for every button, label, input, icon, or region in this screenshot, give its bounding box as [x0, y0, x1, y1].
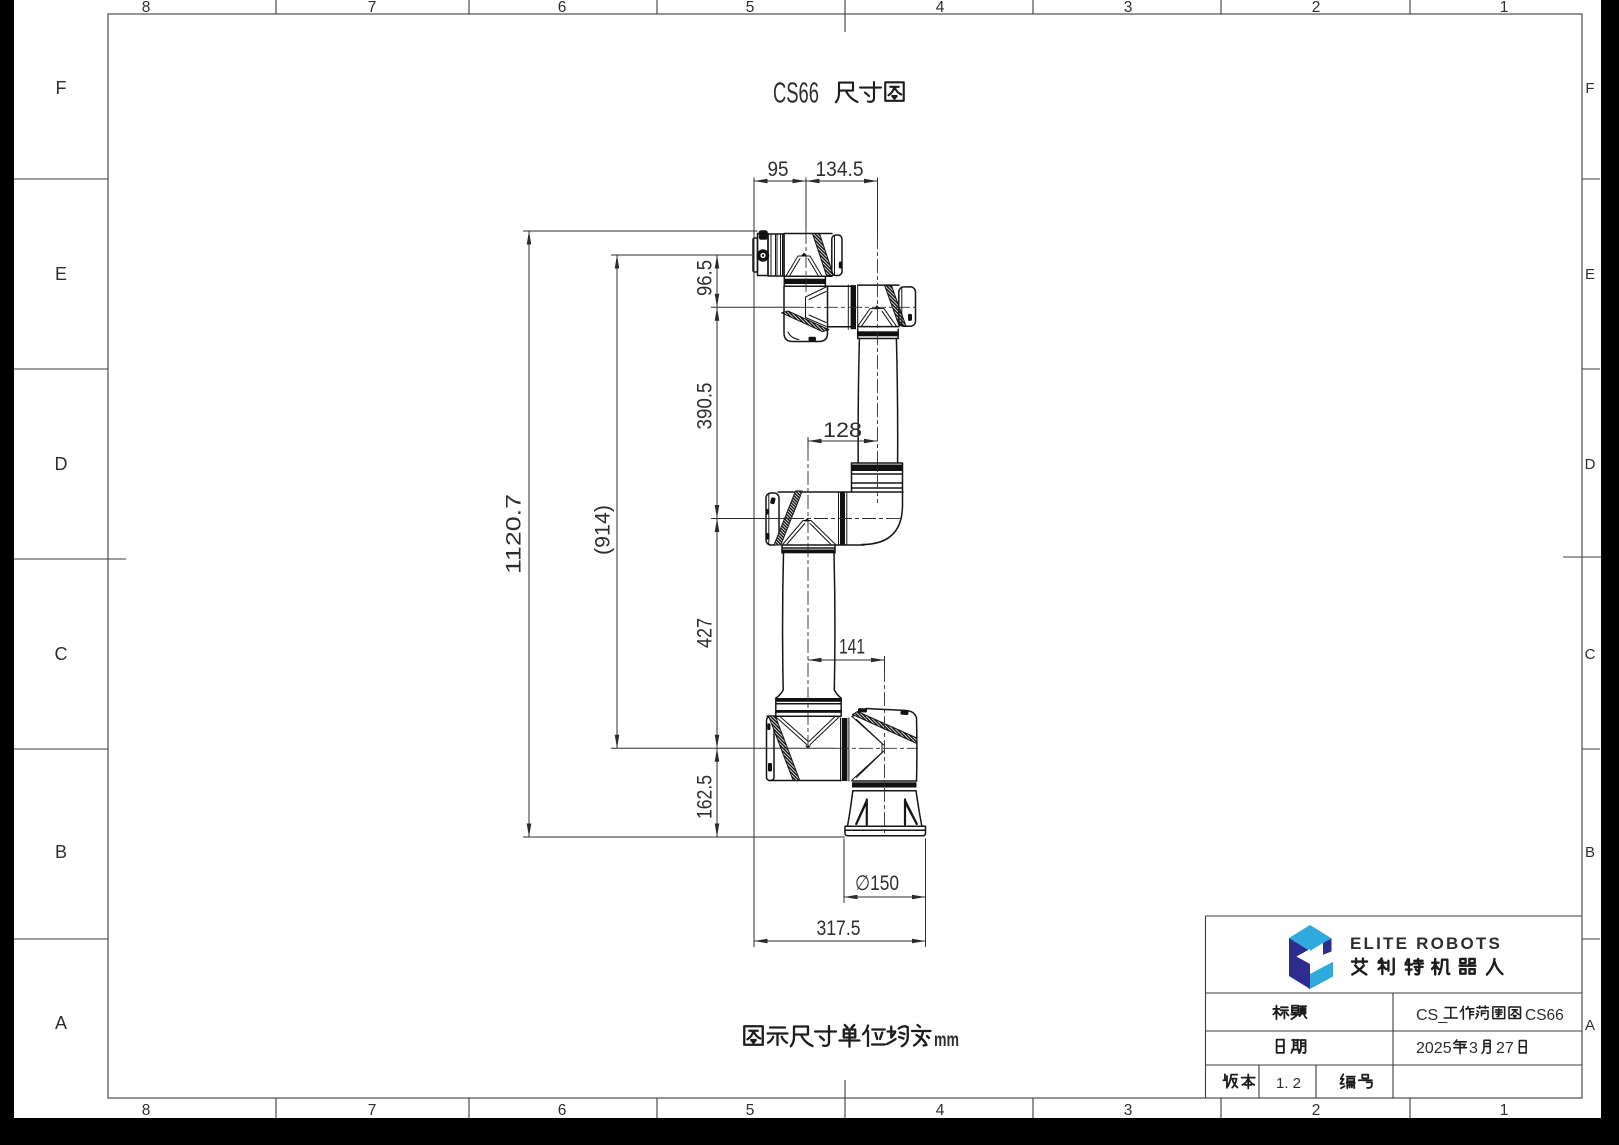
- svg-text:390.5: 390.5: [694, 383, 717, 430]
- svg-text:4: 4: [936, 0, 945, 16]
- svg-text:162.5: 162.5: [694, 775, 717, 819]
- svg-text:A: A: [1585, 1017, 1595, 1034]
- svg-text:4: 4: [936, 1102, 945, 1119]
- svg-text:B: B: [55, 842, 67, 862]
- svg-text:A: A: [55, 1013, 67, 1033]
- svg-text:128: 128: [823, 419, 862, 442]
- svg-text:F: F: [56, 78, 67, 98]
- svg-text:CS66: CS66: [1525, 1007, 1564, 1024]
- svg-text:141: 141: [839, 636, 865, 659]
- svg-text:D: D: [55, 454, 68, 474]
- svg-text:F: F: [1585, 80, 1594, 97]
- svg-text:B: B: [1585, 844, 1595, 861]
- svg-text:1120.7: 1120.7: [503, 494, 526, 574]
- svg-text:CS66: CS66: [773, 78, 819, 110]
- svg-text:E: E: [55, 264, 67, 284]
- svg-text:8: 8: [142, 1102, 151, 1119]
- svg-text:6: 6: [558, 0, 567, 16]
- svg-text:1: 1: [1500, 0, 1509, 16]
- svg-text:95: 95: [768, 158, 789, 181]
- svg-text:3: 3: [1124, 0, 1133, 16]
- svg-text:8: 8: [142, 0, 151, 16]
- svg-text:1. 2: 1. 2: [1276, 1075, 1301, 1092]
- svg-text:ELITE ROBOTS: ELITE ROBOTS: [1350, 934, 1502, 953]
- svg-text:96.5: 96.5: [694, 260, 717, 296]
- svg-text:C: C: [1585, 646, 1596, 663]
- svg-text:2: 2: [1312, 1102, 1321, 1119]
- svg-text:2: 2: [1312, 0, 1321, 16]
- svg-text:134.5: 134.5: [816, 158, 864, 181]
- svg-text:E: E: [1585, 266, 1595, 283]
- svg-text:3: 3: [1469, 1040, 1478, 1057]
- svg-text:D: D: [1585, 456, 1596, 473]
- svg-text:∅150: ∅150: [855, 872, 899, 895]
- svg-text:C: C: [55, 644, 68, 664]
- svg-text:CS_: CS_: [1416, 1007, 1448, 1024]
- svg-text:6: 6: [558, 1102, 567, 1119]
- svg-text:5: 5: [746, 0, 755, 16]
- svg-text:317.5: 317.5: [817, 917, 861, 940]
- svg-text:27: 27: [1496, 1040, 1514, 1057]
- svg-text:2025: 2025: [1416, 1040, 1452, 1057]
- svg-text:5: 5: [746, 1102, 755, 1119]
- svg-text:1: 1: [1500, 1102, 1509, 1119]
- svg-text:3: 3: [1124, 1102, 1133, 1119]
- svg-text:7: 7: [368, 1102, 377, 1119]
- svg-text:mm: mm: [934, 1030, 959, 1051]
- svg-text:7: 7: [368, 0, 377, 16]
- svg-text:427: 427: [694, 618, 717, 648]
- svg-text:(914): (914): [592, 505, 615, 555]
